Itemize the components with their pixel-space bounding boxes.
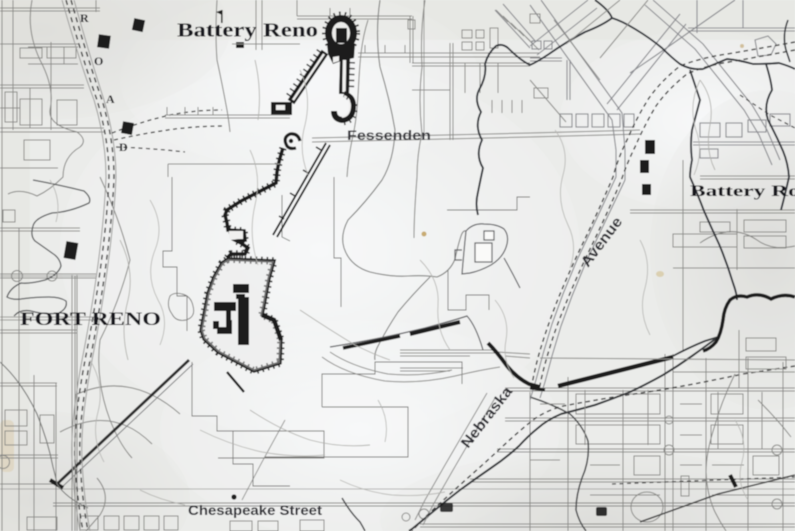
svg-text:Battery Ross: Battery Ross bbox=[690, 183, 795, 200]
svg-text:Fessenden: Fessenden bbox=[347, 127, 431, 143]
svg-text:Battery Reno: Battery Reno bbox=[177, 20, 318, 42]
svg-text:D: D bbox=[119, 140, 128, 154]
svg-text:O: O bbox=[94, 54, 103, 68]
svg-text:A: A bbox=[106, 92, 115, 106]
svg-text:Chesapeake Street: Chesapeake Street bbox=[188, 502, 322, 518]
svg-text:FORT RENO: FORT RENO bbox=[20, 309, 161, 330]
svg-text:R: R bbox=[80, 11, 89, 25]
